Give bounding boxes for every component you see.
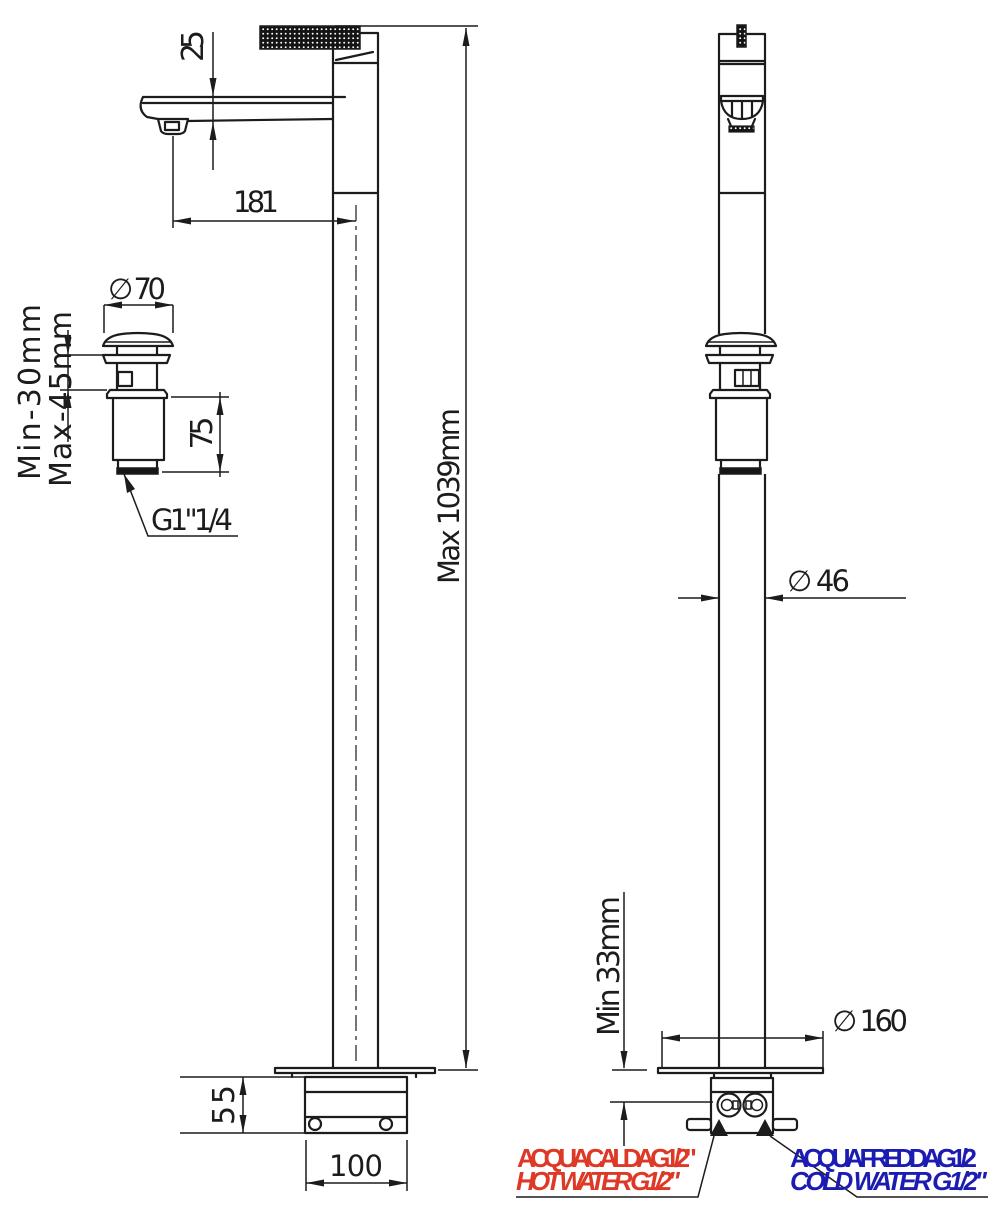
cold-water-label-en: COLD WATER G1/2" — [790, 1166, 988, 1196]
waste-flange-upper — [103, 355, 170, 363]
waste-front-flange-upper — [706, 355, 773, 363]
floor-plate — [275, 1068, 435, 1073]
waste-locknut — [107, 390, 167, 398]
waste-front-thread-end — [720, 468, 761, 474]
handle-stick — [737, 25, 746, 47]
counter-max-label: Max-45mm — [44, 311, 79, 487]
base-screw-left — [309, 1118, 321, 1130]
technical-drawing-page: 25 181 Max 1039mm ∅ 70 Min-30mm Max-45mm… — [0, 0, 992, 1212]
waste-cap-diameter-label: ∅ 70 — [108, 272, 166, 306]
column-diameter-label: ∅ 46 — [787, 564, 850, 598]
hot-water-label-en: HOT WATER G1/2" — [516, 1166, 681, 1196]
waste-thread-label: G1"1/4 — [151, 503, 233, 537]
waste-front-cap — [706, 333, 776, 346]
base-width-label: 100 — [329, 1149, 383, 1183]
technical-drawing: 25 181 Max 1039mm ∅ 70 Min-30mm Max-45mm… — [0, 0, 992, 1212]
max-height-label: Max 1039mm — [432, 408, 466, 584]
aerator-insert — [165, 122, 179, 130]
base-plate-diameter-label: ∅ 160 — [832, 1004, 908, 1038]
spout-height-label: 25 — [176, 30, 211, 62]
aerator-front-knurl — [729, 126, 754, 132]
waste-front-window — [735, 370, 759, 386]
waste-window — [118, 372, 132, 386]
spout-reach-label: 181 — [233, 185, 279, 219]
waste-thread-end — [117, 468, 158, 474]
waste-tail-label: 75 — [185, 417, 220, 450]
mounting-lug-left — [687, 1119, 711, 1130]
floor-plate-front — [658, 1068, 823, 1073]
knurled-handle — [260, 26, 360, 49]
waste-front-locknut — [710, 390, 770, 398]
mounting-lug-right — [773, 1119, 797, 1130]
inlet-clearance-label: Min 33mm — [592, 896, 627, 1036]
base-height-label: 55 — [207, 1085, 242, 1125]
waste-front — [704, 333, 778, 474]
base-screw-right — [380, 1118, 392, 1130]
waste-cap — [103, 333, 173, 346]
